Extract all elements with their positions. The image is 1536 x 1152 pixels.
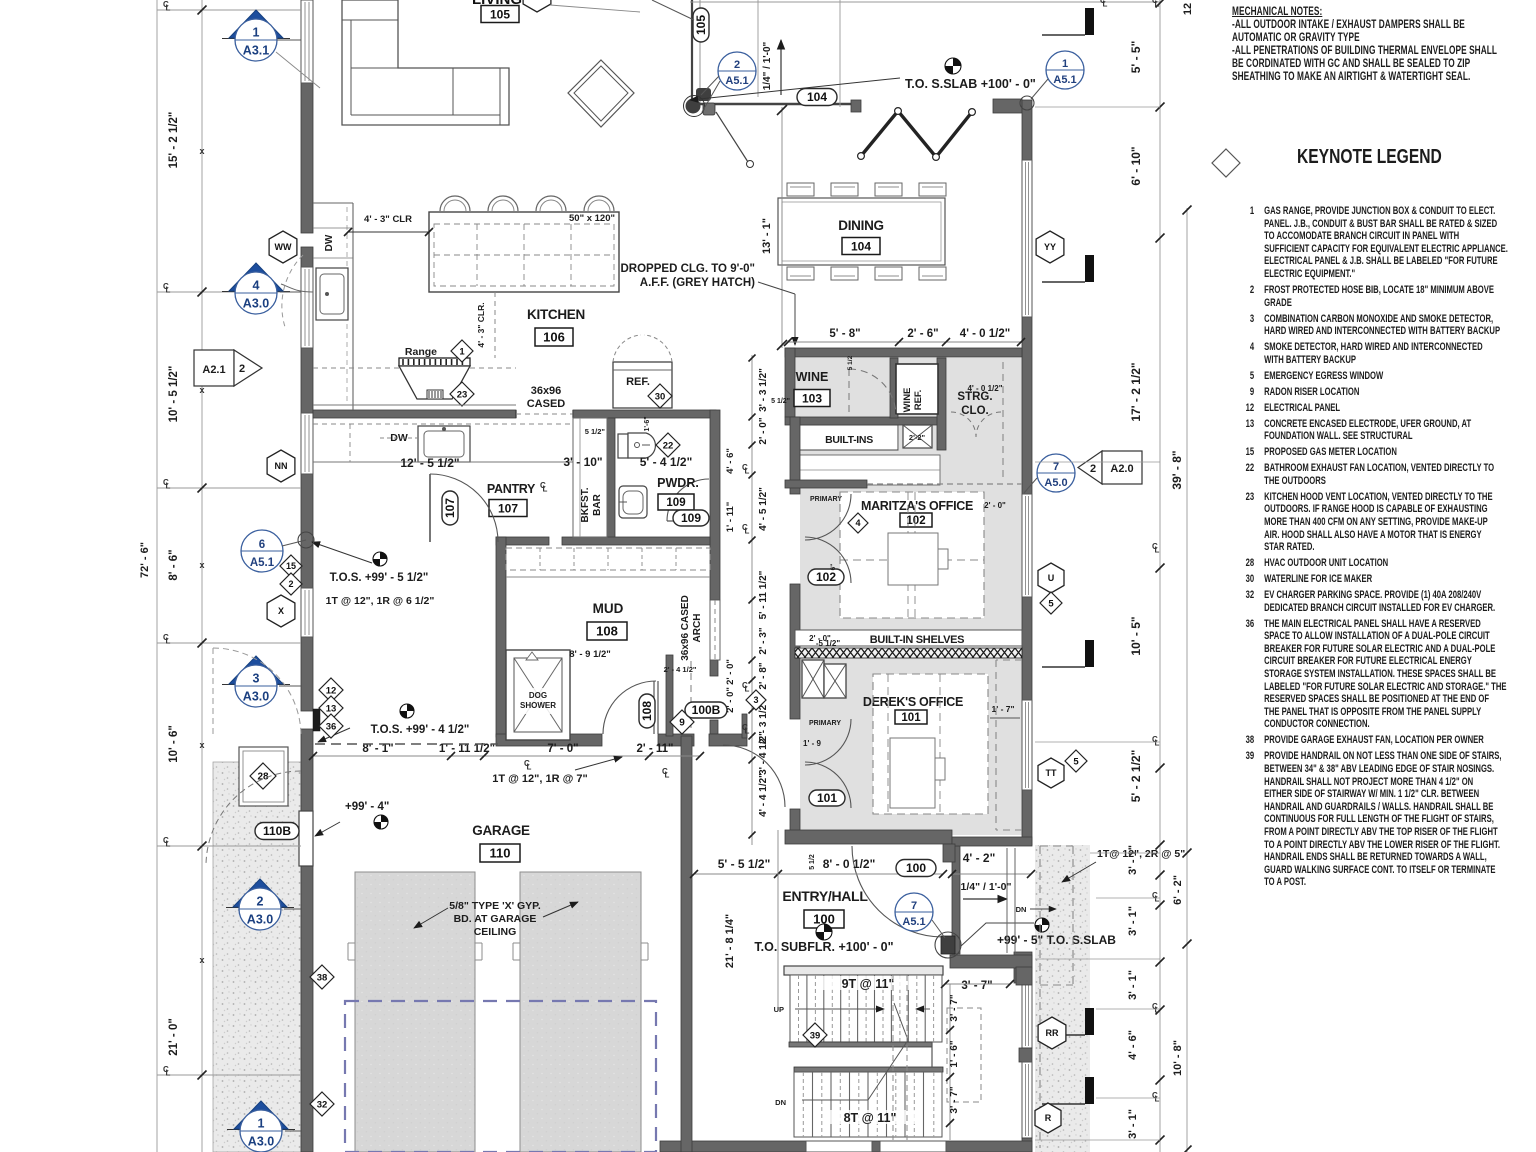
svg-text:3' - 1": 3' - 1": [1127, 970, 1139, 1000]
svg-text:WINE: WINE: [902, 388, 913, 413]
svg-text:5: 5: [1073, 756, 1079, 767]
svg-text:x: x: [199, 146, 204, 156]
svg-text:110B: 110B: [263, 824, 291, 838]
svg-text:50" x 120": 50" x 120": [569, 213, 615, 224]
svg-text:A5.1: A5.1: [1053, 74, 1076, 86]
svg-text:DN: DN: [775, 1098, 786, 1107]
svg-text:A.F.F. (GREY HATCH): A.F.F. (GREY HATCH): [640, 277, 755, 289]
svg-text:A5.1: A5.1: [902, 916, 925, 928]
svg-text:110: 110: [490, 846, 511, 861]
svg-text:-5 1/2": -5 1/2": [816, 639, 840, 648]
svg-text:1' - 7": 1' - 7": [991, 704, 1014, 714]
svg-text:L: L: [527, 763, 532, 772]
svg-text:3: 3: [253, 672, 260, 686]
svg-text:8' - 0 1/2": 8' - 0 1/2": [823, 857, 876, 871]
svg-text:5' - 5": 5' - 5": [1129, 41, 1143, 74]
svg-text:9T @ 11": 9T @ 11": [842, 977, 895, 991]
svg-text:T.O. SUBFLR. +100' - 0": T.O. SUBFLR. +100' - 0": [754, 940, 893, 954]
svg-text:4' - 6": 4' - 6": [1127, 1030, 1139, 1060]
svg-text:10' - 8": 10' - 8": [1172, 1040, 1184, 1076]
svg-text:L: L: [166, 1069, 171, 1078]
svg-text:1T @ 12", 1R @ 7": 1T @ 12", 1R @ 7": [492, 773, 587, 785]
svg-text:30: 30: [655, 391, 666, 402]
svg-text:SHOWER: SHOWER: [520, 701, 556, 710]
svg-text:WW: WW: [275, 242, 292, 252]
svg-text:17' - 2 1/2": 17' - 2 1/2": [1129, 362, 1143, 421]
svg-text:x: x: [199, 740, 204, 750]
svg-text:3: 3: [753, 695, 758, 705]
svg-text:KITCHEN: KITCHEN: [527, 307, 585, 322]
svg-text:Range: Range: [405, 346, 437, 358]
svg-text:L: L: [1155, 739, 1160, 748]
svg-text:DW: DW: [390, 432, 408, 444]
svg-text:A3.1: A3.1: [243, 44, 269, 58]
svg-text:1: 1: [253, 26, 260, 40]
svg-text:DN: DN: [1016, 905, 1027, 914]
svg-text:2' - 11": 2' - 11": [637, 743, 674, 755]
svg-text:2' - 3": 2' - 3": [758, 627, 769, 654]
svg-text:109: 109: [681, 511, 701, 525]
svg-text:36: 36: [326, 721, 337, 732]
svg-text:36x96 CASED: 36x96 CASED: [680, 595, 691, 661]
svg-text:102: 102: [906, 515, 925, 527]
svg-text:2: 2: [239, 363, 245, 375]
svg-text:101: 101: [817, 791, 837, 805]
svg-text:L: L: [665, 771, 670, 780]
svg-text:CEILING: CEILING: [474, 926, 517, 938]
svg-text:2: 2: [288, 579, 293, 589]
svg-text:1' - 11 1/2": 1' - 11 1/2": [439, 743, 495, 755]
svg-text:3' - 7": 3' - 7": [949, 1086, 960, 1113]
svg-text:5' - 5 1/2": 5' - 5 1/2": [718, 857, 771, 871]
svg-text:2' - 6": 2' - 6": [907, 328, 938, 340]
svg-text:DW: DW: [324, 234, 335, 251]
svg-text:8' - 9 1/2": 8' - 9 1/2": [569, 649, 611, 660]
svg-text:4' - 5 1/2": 4' - 5 1/2": [758, 487, 769, 531]
svg-text:REF.: REF.: [626, 376, 650, 388]
svg-text:L: L: [1103, 0, 1108, 9]
svg-text:2' - 0": 2' - 0": [725, 687, 736, 713]
svg-text:L: L: [166, 840, 171, 849]
svg-text:1'-6": 1'-6": [644, 416, 651, 431]
svg-text:2: 2: [257, 895, 264, 909]
svg-text:102: 102: [816, 570, 836, 584]
svg-text:L: L: [745, 527, 750, 536]
svg-text:108: 108: [596, 624, 618, 639]
svg-text:DINING: DINING: [838, 218, 883, 233]
svg-text:L: L: [1155, 0, 1160, 9]
svg-text:1' - 6": 1' - 6": [949, 1040, 960, 1067]
svg-text:YY: YY: [1044, 242, 1056, 252]
svg-text:32: 32: [317, 1099, 328, 1110]
svg-text:5 1/2: 5 1/2: [847, 355, 854, 370]
svg-text:104: 104: [807, 90, 827, 104]
svg-text:X: X: [278, 606, 284, 616]
svg-text:8' - 1": 8' - 1": [362, 743, 393, 755]
svg-text:TT: TT: [1046, 768, 1057, 778]
svg-text:2'-2": 2'-2": [909, 433, 926, 442]
svg-text:100B: 100B: [692, 703, 721, 717]
svg-text:1: 1: [258, 1117, 265, 1131]
svg-text:DROPPED CLG. TO 9'-0": DROPPED CLG. TO 9'-0": [621, 263, 756, 275]
svg-text:13' - 1": 13' - 1": [761, 218, 773, 254]
svg-text:4: 4: [855, 518, 860, 528]
svg-text:4' - 0 1/2": 4' - 0 1/2": [960, 328, 1010, 340]
svg-text:5/8" TYPE 'X' GYP.: 5/8" TYPE 'X' GYP.: [449, 900, 541, 912]
svg-text:BKFST.: BKFST.: [580, 487, 591, 522]
svg-text:39: 39: [810, 1030, 821, 1041]
svg-text:5' - 4 1/2": 5' - 4 1/2": [640, 455, 693, 469]
svg-text:CLO.: CLO.: [961, 405, 988, 417]
svg-text:PRIMARY: PRIMARY: [809, 720, 841, 727]
svg-text:4' - 3" CLR.: 4' - 3" CLR.: [476, 302, 486, 347]
svg-text:CASED: CASED: [527, 398, 566, 410]
svg-text:+99' - 4": +99' - 4": [345, 801, 389, 813]
svg-text:BD. AT GARAGE: BD. AT GARAGE: [454, 913, 537, 925]
svg-text:1: 1: [1062, 58, 1068, 70]
svg-text:21' - 0": 21' - 0": [168, 1018, 180, 1056]
svg-text:5 1/2": 5 1/2": [585, 427, 606, 436]
svg-text:4' - 6": 4' - 6": [725, 448, 736, 474]
svg-text:3' - 7": 3' - 7": [961, 980, 992, 992]
svg-text:104: 104: [851, 239, 871, 253]
svg-text:4' - 2": 4' - 2": [963, 851, 996, 865]
svg-text:1/4" / 1'-0": 1/4" / 1'-0": [762, 41, 773, 90]
svg-text:3' - 1": 3' - 1": [1127, 845, 1139, 875]
svg-text:2: 2: [734, 59, 740, 71]
svg-text:8T @ 11": 8T @ 11": [844, 1111, 897, 1125]
svg-text:12: 12: [326, 685, 337, 696]
svg-text:105: 105: [694, 15, 708, 35]
svg-text:4' - 4 1/2": 4' - 4 1/2": [758, 773, 769, 817]
svg-text:A5.0: A5.0: [1044, 477, 1067, 489]
svg-text:3' - 1": 3' - 1": [1127, 906, 1139, 936]
svg-text:103: 103: [802, 391, 822, 405]
svg-text:5 1/2: 5 1/2: [809, 854, 816, 870]
svg-text:72' - 6": 72' - 6": [139, 542, 151, 578]
svg-text:WINE: WINE: [796, 370, 829, 384]
svg-text:L: L: [745, 685, 750, 694]
svg-text:BUILT-INS: BUILT-INS: [825, 434, 873, 446]
svg-text:L: L: [166, 4, 171, 13]
svg-text:x: x: [199, 955, 204, 965]
svg-text:9: 9: [679, 718, 685, 729]
svg-text:3' - 10": 3' - 10": [563, 455, 602, 469]
svg-text:36x96: 36x96: [531, 385, 562, 397]
svg-text:7: 7: [911, 900, 917, 912]
svg-text:L: L: [166, 637, 171, 646]
svg-text:15' - 2 1/2": 15' - 2 1/2": [168, 112, 180, 169]
svg-text:100: 100: [906, 861, 926, 875]
svg-text:REF.: REF.: [913, 390, 924, 411]
svg-text:L: L: [166, 286, 171, 295]
svg-text:6' - 2": 6' - 2": [1172, 875, 1184, 905]
svg-text:T.O.S. +99' - 5 1/2": T.O.S. +99' - 5 1/2": [330, 572, 429, 584]
svg-text:22: 22: [663, 440, 674, 451]
svg-text:1' - 11": 1' - 11": [725, 502, 736, 533]
svg-text:5: 5: [1048, 598, 1054, 609]
svg-text:2' - 0": 2' - 0": [984, 501, 1006, 510]
svg-text:3' - 7": 3' - 7": [949, 994, 960, 1021]
svg-text:15: 15: [286, 561, 296, 571]
svg-text:13: 13: [326, 703, 337, 714]
svg-text:U: U: [1048, 573, 1055, 583]
svg-text:L: L: [166, 482, 171, 491]
svg-text:NN: NN: [275, 461, 288, 471]
svg-text:L: L: [1155, 546, 1160, 555]
svg-text:3' - 1": 3' - 1": [1127, 1109, 1139, 1139]
svg-text:GARAGE: GARAGE: [472, 823, 530, 838]
svg-text:L: L: [745, 727, 750, 736]
svg-text:12: 12: [1182, 3, 1194, 15]
svg-text:5' - 8": 5' - 8": [829, 328, 860, 340]
svg-text:RR: RR: [1046, 1028, 1059, 1038]
svg-text:107: 107: [443, 498, 457, 518]
svg-text:BAR: BAR: [592, 493, 603, 515]
svg-text:105: 105: [490, 7, 510, 21]
svg-text:10' - 5 1/2": 10' - 5 1/2": [168, 366, 180, 423]
svg-text:MARITZA'S OFFICE: MARITZA'S OFFICE: [861, 499, 973, 513]
svg-text:L: L: [543, 485, 548, 494]
svg-text:ENTRY/HALL: ENTRY/HALL: [782, 888, 868, 904]
svg-text:6": 6": [830, 564, 837, 571]
svg-text:7' - 0": 7' - 0": [547, 743, 578, 755]
svg-text:7: 7: [1053, 461, 1059, 473]
svg-text:1' - 9: 1' - 9: [803, 739, 821, 748]
svg-text:T.O. S.SLAB +100' - 0": T.O. S.SLAB +100' - 0": [905, 77, 1036, 91]
svg-text:x: x: [199, 560, 204, 570]
svg-text:A2.1: A2.1: [202, 364, 225, 376]
svg-text:PANTRY: PANTRY: [487, 482, 536, 496]
svg-text:6: 6: [259, 539, 265, 551]
svg-text:108: 108: [640, 701, 654, 721]
svg-text:PRIMARY: PRIMARY: [810, 496, 842, 503]
svg-text:10' - 6": 10' - 6": [168, 725, 180, 763]
svg-text:21' - 8 1/4": 21' - 8 1/4": [724, 914, 736, 968]
svg-text:A2.0: A2.0: [1110, 463, 1133, 475]
svg-text:4: 4: [253, 279, 260, 293]
svg-text:A3.0: A3.0: [243, 690, 269, 704]
svg-text:4' - 3" CLR: 4' - 3" CLR: [364, 214, 412, 225]
svg-text:2' - 0": 2' - 0": [725, 659, 736, 685]
svg-text:MUD: MUD: [593, 601, 624, 616]
svg-text:3' - 3 1/2": 3' - 3 1/2": [758, 368, 769, 412]
svg-text:8' - 6": 8' - 6": [168, 549, 180, 580]
svg-text:A5.1: A5.1: [725, 75, 748, 87]
svg-text:10' - 5": 10' - 5": [1129, 616, 1143, 655]
svg-text:39' - 8": 39' - 8": [1170, 450, 1184, 489]
svg-text:5' - 2 1/2": 5' - 2 1/2": [1129, 750, 1143, 803]
svg-text:T.O.S. +99' - 4 1/2": T.O.S. +99' - 4 1/2": [371, 724, 470, 736]
svg-text:L: L: [1155, 1006, 1160, 1015]
svg-text:3' - 4 1/2": 3' - 4 1/2": [758, 731, 769, 775]
svg-text:6' - 10": 6' - 10": [1129, 146, 1143, 185]
svg-text:2: 2: [1090, 463, 1096, 475]
svg-text:PWDR.: PWDR.: [657, 476, 699, 490]
svg-text:BUILT-IN SHELVES: BUILT-IN SHELVES: [870, 634, 964, 646]
svg-text:101: 101: [901, 712, 921, 724]
svg-text:1: 1: [459, 346, 465, 357]
svg-text:5' - 11 1/2": 5' - 11 1/2": [758, 570, 769, 619]
svg-text:23: 23: [457, 389, 468, 400]
svg-text:38: 38: [317, 972, 328, 983]
svg-text:DOG: DOG: [529, 691, 547, 700]
svg-text:2' - 0": 2' - 0": [758, 417, 769, 444]
svg-text:ARCH: ARCH: [692, 614, 703, 643]
svg-text:A3.0: A3.0: [248, 1135, 274, 1149]
svg-text:A3.0: A3.0: [243, 297, 269, 311]
svg-text:A5.1: A5.1: [250, 557, 275, 569]
svg-text:R: R: [1045, 1113, 1052, 1123]
svg-text:5 1/2": 5 1/2": [771, 398, 790, 405]
svg-text:L: L: [1155, 895, 1160, 904]
svg-text:A3.0: A3.0: [247, 913, 273, 927]
svg-text:1/4" / 1'-0": 1/4" / 1'-0": [961, 881, 1012, 893]
svg-text:1T@ 12", 2R @ 5": 1T@ 12", 2R @ 5": [1097, 848, 1185, 860]
svg-text:UP: UP: [774, 1005, 784, 1014]
svg-text:106: 106: [543, 330, 565, 345]
svg-text:2' - 4 1/2": 2' - 4 1/2": [664, 665, 697, 674]
svg-text:DEREK'S OFFICE: DEREK'S OFFICE: [863, 695, 963, 709]
svg-text:1T @ 12", 1R @ 6 1/2": 1T @ 12", 1R @ 6 1/2": [326, 595, 435, 607]
svg-text:109: 109: [666, 497, 685, 509]
svg-text:L: L: [745, 467, 750, 476]
svg-text:107: 107: [498, 501, 518, 515]
svg-text:12' - 5 1/2": 12' - 5 1/2": [400, 456, 459, 470]
svg-text:L: L: [1155, 1095, 1160, 1104]
svg-text:2' - 8": 2' - 8": [758, 662, 769, 689]
svg-text:4' - 0 1/2": 4' - 0 1/2": [967, 384, 1002, 393]
